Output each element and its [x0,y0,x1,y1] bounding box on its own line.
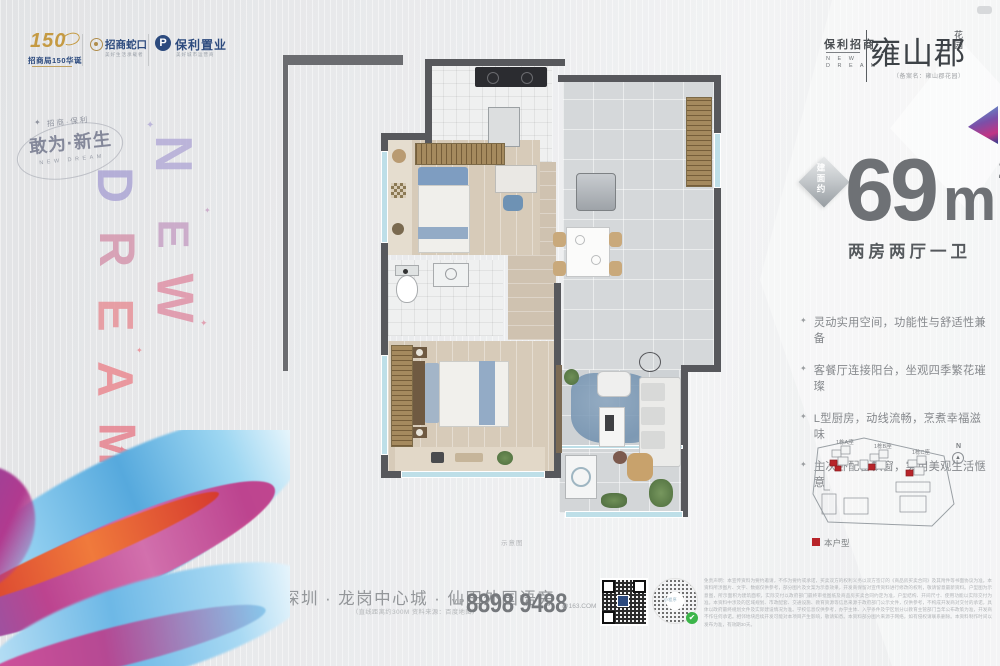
lamp [416,349,423,356]
partition [283,65,288,146]
anniversary-label: 招商局150华诞 [28,55,82,66]
art-letter-e: E [151,219,195,248]
project-name: 雍山郡 [870,28,966,73]
phone-number: 8898 9488 [466,588,567,619]
legend-label: 本户型 [824,537,850,549]
dining-table [566,227,610,277]
art-letter-d: D [90,167,140,203]
suffix-char: 花 [953,30,964,40]
window [714,133,721,188]
north-compass-icon: ▲ [952,452,964,464]
partition [283,60,403,65]
stove [475,67,547,87]
art-letter-r: R [92,231,142,267]
floorplan-caption: 示意图 [501,537,524,547]
master-pillows [425,363,439,423]
anniversary-underline [32,66,72,67]
check-badge-icon: ✔ [686,612,698,624]
siteplan-map: 1栋A座 1栋B座 1栋C座 [808,432,968,534]
pot [613,451,627,464]
toilet [396,275,418,303]
burner [521,72,533,84]
poly-logo-icon: P [155,35,171,51]
feature-text: 客餐厅连接阳台，坐观四季繁花璀璨 [814,362,990,394]
place-setting [591,255,601,265]
dining-chair [609,232,622,247]
plant [649,479,673,507]
master-window [401,471,545,478]
diamond-bullet-icon: ✦ [800,316,807,325]
lounge-chair [597,371,631,397]
partition [283,146,288,268]
cmsk-logo-name: 招商蛇口 [105,37,147,52]
project-name-suffix: 花 园 [953,30,964,50]
building-label-c: 1栋C座 [912,448,931,456]
suffix-char: 园 [953,40,964,50]
window [381,355,388,455]
tv-console [556,365,562,453]
bay-tray [431,452,444,463]
poster-canvas: 150 招商局150华诞 招商蛇口 美好生活承载者 P 保利置业 美好城市运营商… [0,0,1000,666]
logo-divider [82,34,83,66]
burner [487,72,499,84]
headboard [413,361,425,425]
plant [601,493,627,508]
master-wardrobe [391,345,413,447]
art-letter-w: W [149,273,201,322]
phone-suffix: @163.COM [562,603,596,610]
balcony-window [565,511,683,518]
dining-chair [553,232,566,247]
bay-decor [392,149,406,163]
legend-swatch [812,538,820,546]
address-note: （直线距离约300M 资料来源：百度地图） [352,607,479,616]
poly-tagline: 美好城市运营商 [176,52,215,58]
art-letter-e2: E [91,298,141,331]
vip-label: VIP [452,597,464,606]
wardrobe [415,143,505,165]
sparkle-icon: ✦ [204,206,211,215]
masthead-divider [866,30,867,82]
miniprogram-label: 小程序 [664,597,677,603]
dining-chair [553,261,566,276]
sink-basin [445,268,457,280]
desk-chair [503,195,523,211]
wall [681,365,688,517]
qr-code [600,578,648,626]
art-letter-n: N [147,135,199,173]
refrigerator [576,173,616,211]
co-brand-rule [826,52,860,53]
wall [425,59,565,66]
bay-decor [392,223,404,235]
bed-pillows [418,167,468,185]
art-letter-a: A [90,361,140,397]
logo-divider [148,34,149,66]
wall [381,133,432,140]
place-setting [575,235,585,245]
qr-eye [602,580,615,593]
window [381,151,388,243]
wall [714,75,721,133]
toilet-button [403,269,408,274]
wall [714,188,721,370]
balcony-chair [627,453,653,481]
sparkle-icon: ✦ [136,346,143,355]
washer-door [571,467,591,487]
diamond-bullet-icon: ✦ [800,412,807,421]
diamond-bullet-icon: ✦ [800,364,807,373]
north-label: N [956,443,961,450]
building-label-a: 1栋A座 [836,438,854,446]
sofa-cushion [641,407,665,425]
feature-text: 灵动实用空间，功能性与舒适性兼备 [814,314,990,346]
ribbon-wave-graphic [0,430,290,666]
area-figure: 69 m 2 [845,146,1000,234]
feature-item: ✦ 灵动实用空间，功能性与舒适性兼备 [800,314,990,346]
plant [564,369,579,385]
legal-disclaimer: 免责声明：本宣传资料为要约邀请，不作为要约或承诺，买卖双方的权利义务以双方签订的… [704,577,992,641]
miniprogram-qr-code: 小程序 ✔ [652,578,698,624]
area-badge-label: 建面约 [815,163,827,195]
sofa-cushion [641,431,665,449]
sparkle-icon: ✦ [200,318,208,329]
qr-eye [602,611,615,624]
building-label-b: 1栋B座 [874,442,892,450]
area-value: 69 [845,146,935,234]
sofa-cushion [641,383,665,401]
cmsk-logo-dot [94,42,98,46]
master-bed [439,361,509,427]
dining-chair [609,261,622,276]
area-unit: m [943,170,996,230]
hall-cabinet [686,97,712,187]
bed-runner [418,227,468,239]
wall [558,75,721,82]
qr-eye [633,580,646,593]
cmsk-tagline: 美好生活承载者 [105,52,144,58]
floorplan: 示意图 [283,55,733,567]
bed [418,185,470,253]
diamond-bullet-icon: ✦ [800,460,807,469]
desk [495,165,537,193]
layout-spec: 两房两厅一卫 [848,238,971,262]
bench [455,453,483,462]
qr-pattern [602,580,646,624]
sparkle-icon: ✦ [146,120,154,131]
feature-item: ✦ 客餐厅连接阳台，坐观四季繁花璀璨 [800,362,990,394]
anniversary-150-logo: 150 [30,30,66,53]
partition [283,268,288,371]
watermark-pill [977,6,992,14]
side-table [639,352,661,372]
lamp [416,429,423,436]
registered-name: （备案名：雍山郡花园） [893,71,965,80]
poly-logo-name: 保利置业 [175,36,227,53]
slogan-badge: 招商·保利 敢为·新生 NEW DREAM [20,111,120,168]
master-bed-runner [479,361,495,425]
kitchen-sink [488,107,520,147]
table-tray [605,415,614,431]
checker-mat [391,183,406,198]
plant [497,451,513,465]
co-brand-label: 保利招商 [824,36,876,52]
qr-logo-center [617,595,629,607]
